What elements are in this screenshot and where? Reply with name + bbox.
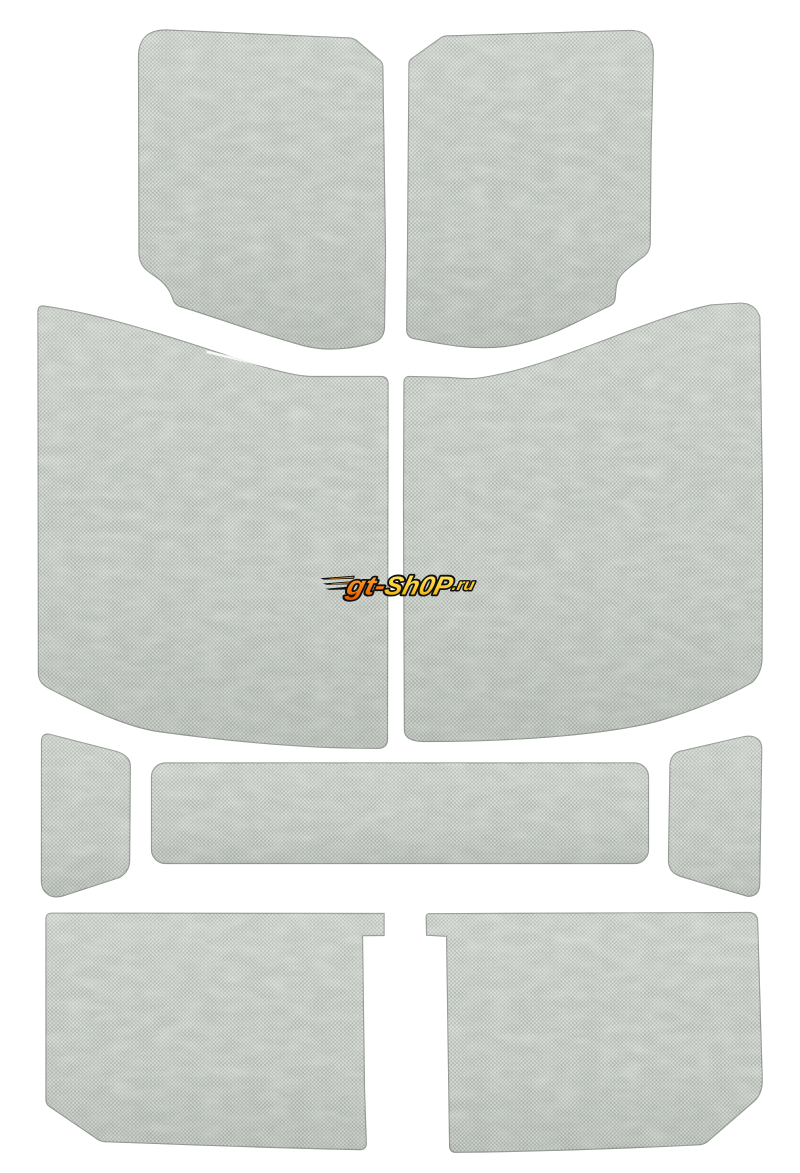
svg-text:Sh0P: Sh0P bbox=[382, 571, 457, 601]
svg-text:.ru: .ru bbox=[450, 576, 477, 594]
